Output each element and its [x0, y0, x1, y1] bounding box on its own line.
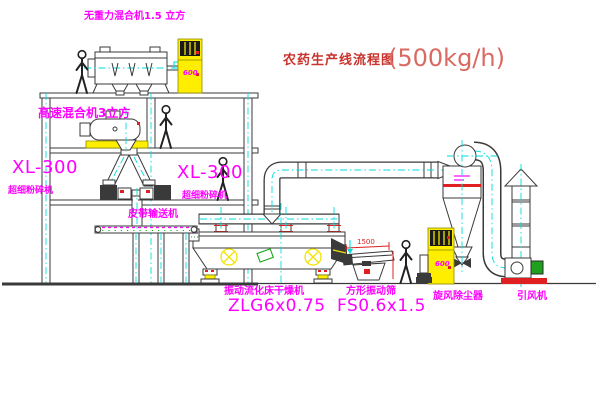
- person-ground: [401, 241, 412, 283]
- pulverizer-left: [98, 180, 133, 200]
- marking-cabinet-right: 600: [435, 261, 450, 268]
- page-title-capacity: (500kg/h): [388, 46, 505, 70]
- process-flow-diagram: 农药生产线流程图 (500kg/h) 无重力混合机1.5 立方 高速混合机3立方…: [0, 0, 600, 403]
- label-cyclone: 旋风除尘器: [433, 292, 483, 302]
- pulverizer-right: [138, 180, 173, 200]
- person-second-floor: [161, 106, 172, 148]
- control-cabinet-right: [428, 228, 454, 284]
- label-belt-conveyor: 皮带输送机: [128, 210, 178, 220]
- label-mill-right-model: XL-300: [177, 164, 243, 182]
- person-top-floor: [77, 51, 88, 93]
- marking-cabinet-top: 600: [183, 70, 198, 77]
- label-gravity-mixer: 无重力混合机1.5 立方: [84, 12, 185, 22]
- label-mill-left-name: 超细粉碎机: [8, 187, 53, 196]
- label-mill-left-model: XL-300: [12, 159, 78, 177]
- spring-mount-right: [314, 269, 332, 283]
- label-high-speed-mixer: 高速混合机3立方: [38, 107, 130, 119]
- label-mill-right-name: 超细粉碎机: [182, 192, 227, 201]
- exhaust-duct: [264, 162, 453, 223]
- vibrating-sieve: [342, 240, 394, 280]
- page-title: 农药生产线流程图: [283, 54, 395, 67]
- dim-sieve-length: 1500: [357, 239, 375, 246]
- label-dryer-model: ZLG6x0.75: [228, 298, 326, 315]
- induced-draft-fan: [501, 258, 547, 284]
- fluid-bed-dryer: [187, 203, 347, 293]
- control-cabinet-top: [178, 39, 202, 93]
- belt-conveyor: [95, 226, 197, 283]
- label-fan: 引风机: [517, 292, 547, 302]
- label-sieve-model: FS0.6x1.5: [337, 298, 426, 315]
- spring-mount-left: [201, 269, 219, 283]
- gravity-free-mixer: [84, 47, 184, 95]
